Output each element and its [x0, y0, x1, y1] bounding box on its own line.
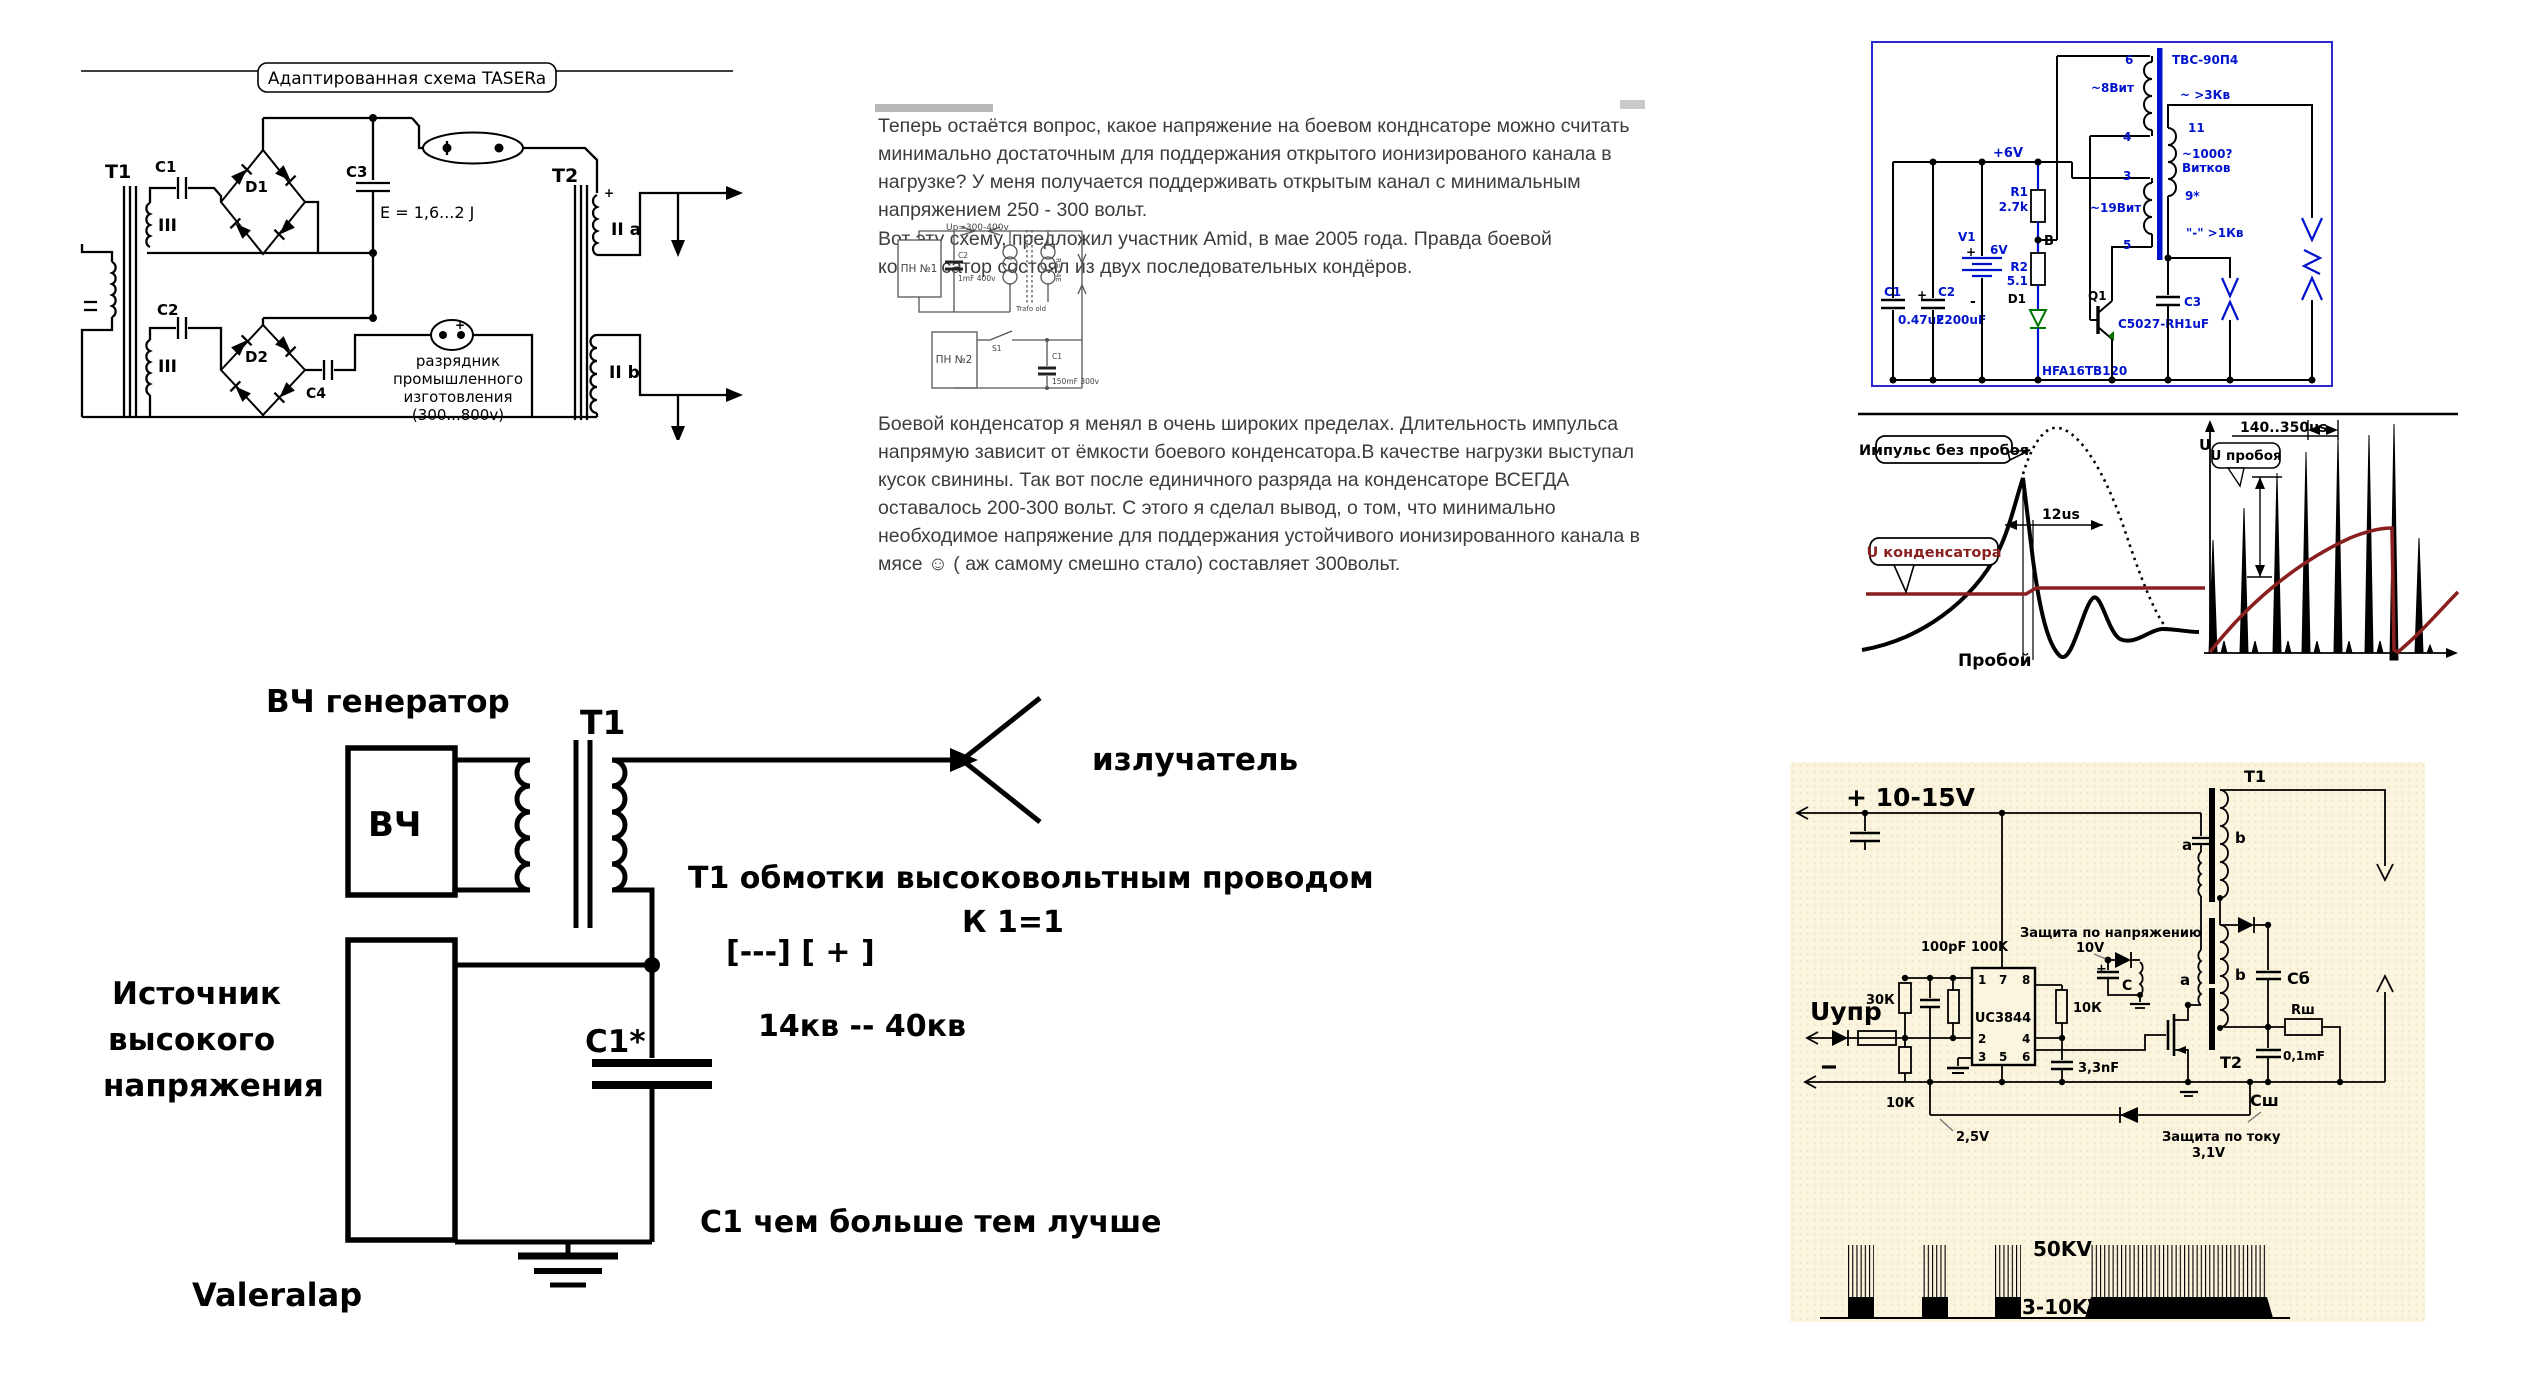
- t1-transformer-sketch: [455, 740, 625, 928]
- r2-label: R2: [2010, 260, 2028, 274]
- energy-label: E = 1,6...2 J: [380, 203, 474, 222]
- rectifier-lower: C2 D2: [150, 301, 373, 417]
- src-line3: напряжения: [103, 1068, 324, 1104]
- r2-value: 5.1: [2007, 274, 2028, 288]
- r1-value: 2.7k: [1999, 200, 2029, 214]
- supply-label: + 10-15V: [1846, 783, 1976, 812]
- t2-label: T2: [552, 165, 578, 187]
- v1-label: V1: [1958, 230, 1976, 244]
- ref-label: 2,5V: [1956, 1130, 1989, 1145]
- winding-iib-label: II b: [609, 363, 640, 383]
- winding-note: Т1 обмотки высоковольтным проводом: [688, 861, 1374, 896]
- chip-label: UC3844: [1975, 1011, 2031, 1026]
- iia-plus: +: [604, 186, 614, 200]
- callout-ubreak: U пробоя: [2210, 443, 2281, 486]
- ground-rail: [1805, 1076, 2385, 1088]
- taser-schematic: Адаптированная схема TASERa T1 III III C…: [60, 40, 760, 440]
- rail-label: +6V: [1993, 146, 2023, 161]
- c33-label: 3,3nF: [2078, 1061, 2119, 1076]
- schematic-collage: Адаптированная схема TASERa T1 III III C…: [0, 0, 2528, 1380]
- quote-smudge: [875, 104, 993, 112]
- hv1-label: ~ >3Кв: [2180, 88, 2230, 102]
- c01-label: 0,1mF: [2283, 1049, 2325, 1063]
- post-para1: Теперь остаётся вопрос, какое напряжение…: [878, 112, 1653, 224]
- hv2-label: "-" >1Кв: [2186, 226, 2244, 240]
- v1-plus: +: [1966, 245, 1976, 259]
- pn2-label: ПН №2: [936, 354, 973, 366]
- callout3-text: U пробоя: [2210, 448, 2281, 464]
- c4-label: C4: [306, 386, 326, 402]
- kv50-label: 50KV: [2033, 1237, 2092, 1261]
- gen-title: ВЧ генератор: [266, 684, 510, 720]
- r30-label: 30К: [1866, 993, 1895, 1008]
- t1-transformer: T1 III III: [82, 161, 177, 417]
- d1-part: HFA16TB120: [2042, 364, 2127, 378]
- mini-c2-value: 1mF 400v: [958, 274, 996, 283]
- scope-left: 12us Импульс без пробоя U конденсатора П…: [1859, 428, 2205, 671]
- emitter-label: излучатель: [1092, 742, 1298, 778]
- c1-capacitor-sketch: С1*: [455, 890, 712, 1242]
- d1-label: D1: [245, 178, 268, 196]
- c2-label: C2: [1938, 285, 1955, 299]
- pin3: 3: [2123, 169, 2131, 183]
- t140-label: 140..350us: [2240, 420, 2327, 436]
- breakdown-label: Пробой: [1958, 651, 2032, 671]
- pin8: 8: [2022, 973, 2030, 987]
- turns2: Витков: [2182, 161, 2231, 175]
- flyback-transformers: Т1 a a b b Т2 Сб: [2180, 767, 2393, 1110]
- taser-title: Адаптированная схема TASERa: [268, 69, 546, 89]
- osc-network: 10К 3,3nF: [2035, 985, 2119, 1085]
- emitter-output: излучатель: [612, 698, 1298, 822]
- c2-plus: +: [1917, 288, 1927, 302]
- winding3-bot-label: III: [158, 357, 177, 377]
- vch-label: ВЧ: [368, 805, 421, 845]
- iprot-label: Защита по току: [2162, 1130, 2281, 1145]
- mini-c1-label: C1: [1052, 352, 1062, 361]
- mini-c2-label: C2: [958, 251, 968, 260]
- pin11: 11: [2188, 121, 2205, 135]
- hv-source-box: [348, 940, 455, 1240]
- c2-label: C2: [157, 301, 178, 319]
- core-part: ТВС-90П4: [2172, 53, 2238, 67]
- scope-right: U 140..350us U пробоя: [2199, 420, 2458, 660]
- author-label: Valeralap: [192, 1276, 362, 1314]
- c2-value: 2200uF: [1936, 313, 1986, 327]
- post-para3: Боевой конденсатор я менял в очень широк…: [878, 410, 1653, 578]
- c3-label: C3: [2184, 295, 2201, 309]
- t2-transformer: T2 + II a II b: [82, 165, 641, 420]
- r-value-label: R=14E: [1054, 258, 1062, 282]
- output-waveforms: 50KV 3-10KV: [1820, 1237, 2290, 1319]
- title-banner: Адаптированная схема TASERa: [81, 63, 733, 92]
- amid-mini-schematic: Up=300-400v ПН №1 C2 1mF 400v Trafo old …: [872, 220, 1217, 410]
- b-node-label: B: [2044, 234, 2054, 249]
- winding3-top-label: III: [158, 216, 177, 236]
- pin9: 9*: [2185, 189, 2200, 203]
- v1-minus: -: [1970, 294, 1976, 310]
- t1-label: Т1: [2244, 767, 2266, 786]
- ground-symbol: [518, 1242, 618, 1285]
- t1-label: T1: [105, 161, 131, 183]
- r1-label: R1: [2010, 185, 2028, 199]
- svg-text:+: +: [2096, 962, 2107, 977]
- pin5: 5: [1999, 1050, 2007, 1064]
- c1-label: C1: [1884, 285, 1901, 299]
- hv-generator-sketch: ВЧ генератор Т1 ВЧ излучатель Т1 обмотки…: [70, 670, 1540, 1320]
- kv-range-label: 14кв -- 40кв: [758, 1009, 966, 1044]
- c-label: С: [2122, 978, 2132, 994]
- src-line1: Источник: [112, 976, 281, 1012]
- callout1-text: Импульс без пробоя: [1859, 443, 2029, 459]
- winding-iia-label: II a: [611, 220, 641, 240]
- corner-smudge: [1620, 100, 1645, 109]
- pin3: 3: [1978, 1050, 1986, 1064]
- pin7: 7: [1999, 973, 2007, 987]
- vprot-label: Защита по напряжению: [2020, 926, 2202, 941]
- gap2-l2: промышленного: [393, 370, 523, 388]
- b2-label: b: [2235, 966, 2246, 984]
- current-protection: 2,5V Защита по току 3,1V: [1927, 1079, 2281, 1161]
- pin2: 2: [1978, 1032, 1986, 1046]
- ratio-label: К 1=1: [962, 905, 1064, 940]
- r10a-label: 10К: [1886, 1096, 1915, 1111]
- mini-c1-value: 150mF 300v: [1052, 377, 1100, 386]
- pn1-label: ПН №1: [901, 263, 938, 275]
- supply-rail: + 10-15V: [1797, 783, 2201, 850]
- arrow-140us: 140..350us: [2232, 420, 2338, 440]
- r10b-label: 10К: [2073, 1001, 2102, 1016]
- industrial-spark-gap: C4 + разрядник промышленного изготовлени…: [305, 318, 532, 424]
- pin4: 4: [2123, 130, 2131, 144]
- rectifier-upper: C1 D1: [147, 118, 373, 254]
- a2-label: a: [2180, 971, 2190, 989]
- c1-note: С1 чем больше тем лучше: [700, 1205, 1161, 1240]
- callout-no-breakdown: Импульс без пробоя: [1859, 436, 2030, 463]
- oscillograms: 12us Импульс без пробоя U конденсатора П…: [1848, 404, 2463, 684]
- converter-schematic: +6V C1 0.47uF + C2 2200uF V1 + 6V - R1 2…: [1860, 20, 2340, 395]
- gap2-l1: разрядник: [416, 352, 500, 370]
- src-line2: высокого: [108, 1022, 275, 1058]
- cb-label: Сб: [2287, 969, 2310, 988]
- voltage-protection: Защита по напряжению 10V + С: [2020, 926, 2202, 1008]
- gap2-plus: +: [455, 318, 465, 332]
- d1-label: D1: [2008, 292, 2026, 306]
- forum-paragraph-2: Боевой конденсатор я менял в очень широк…: [878, 410, 1653, 579]
- pin5: 5: [2123, 238, 2131, 252]
- turns1: ~1000?: [2182, 147, 2232, 161]
- w2-turns: ~19Вит: [2090, 201, 2141, 215]
- pin6: 6: [2125, 53, 2133, 67]
- gap2-l4: (300...800v): [412, 406, 504, 424]
- rsh-label: Rш: [2291, 1003, 2315, 1018]
- storage-cap-c3: C3 E = 1,6...2 J: [263, 114, 474, 322]
- arrow-12us: 12us: [2005, 507, 2103, 530]
- rc-labels: 100pF 100K: [1921, 940, 2009, 955]
- q1-part: C5027-RH: [2118, 317, 2184, 331]
- c1-label: С1*: [585, 1024, 646, 1060]
- polarity-label: [---] [ + ]: [726, 935, 875, 970]
- pin1: 1: [1978, 973, 1986, 987]
- t2-label: Т2: [2220, 1053, 2242, 1072]
- s1-label: S1: [992, 344, 1002, 353]
- a1-label: a: [2182, 836, 2192, 854]
- uc3844-schematic: + 10-15V Uупр 30К 10К: [1788, 755, 2443, 1330]
- trafo-label: Trafo old: [1015, 305, 1046, 313]
- t12-label: 12us: [2042, 507, 2080, 523]
- c3-label: C3: [346, 163, 367, 181]
- mini-transformer: Trafo old R=14E: [1003, 230, 1062, 313]
- w1-turns: ~8Вит: [2091, 81, 2134, 95]
- pin6: 6: [2022, 1050, 2030, 1064]
- c1-label: C1: [155, 158, 176, 176]
- gap2-l3: изготовления: [404, 388, 513, 406]
- csh-label: Сш: [2250, 1091, 2279, 1110]
- callout2-text: U конденсатора: [1866, 545, 2001, 561]
- pin4: 4: [2022, 1032, 2030, 1046]
- q1-label: Q1: [2088, 289, 2107, 303]
- callout-ucap: U конденсатора: [1866, 538, 2001, 592]
- b1-label: b: [2235, 829, 2246, 847]
- d2-label: D2: [245, 348, 268, 366]
- t1-label: Т1: [580, 703, 625, 742]
- c3-value: 1uF: [2184, 317, 2209, 331]
- vprot-value: 10V: [2076, 941, 2104, 956]
- v1-value: 6V: [1990, 243, 2008, 257]
- iprot-value: 3,1V: [2192, 1146, 2225, 1161]
